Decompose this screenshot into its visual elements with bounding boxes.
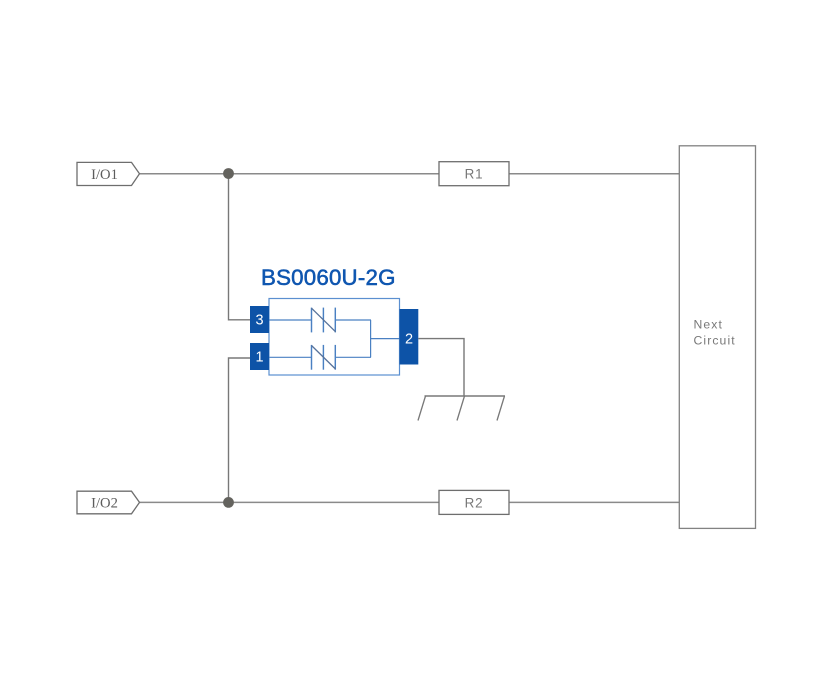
- svg-text:Next: Next: [694, 318, 723, 332]
- svg-text:I/O2: I/O2: [91, 496, 118, 512]
- svg-text:BS0060U-2G: BS0060U-2G: [261, 265, 396, 290]
- svg-text:2: 2: [405, 332, 413, 348]
- svg-text:1: 1: [255, 350, 263, 366]
- svg-text:I/O1: I/O1: [91, 167, 118, 183]
- svg-text:Circuit: Circuit: [694, 333, 736, 347]
- svg-text:R2: R2: [465, 495, 484, 510]
- svg-text:3: 3: [255, 313, 263, 329]
- svg-text:R1: R1: [465, 167, 484, 182]
